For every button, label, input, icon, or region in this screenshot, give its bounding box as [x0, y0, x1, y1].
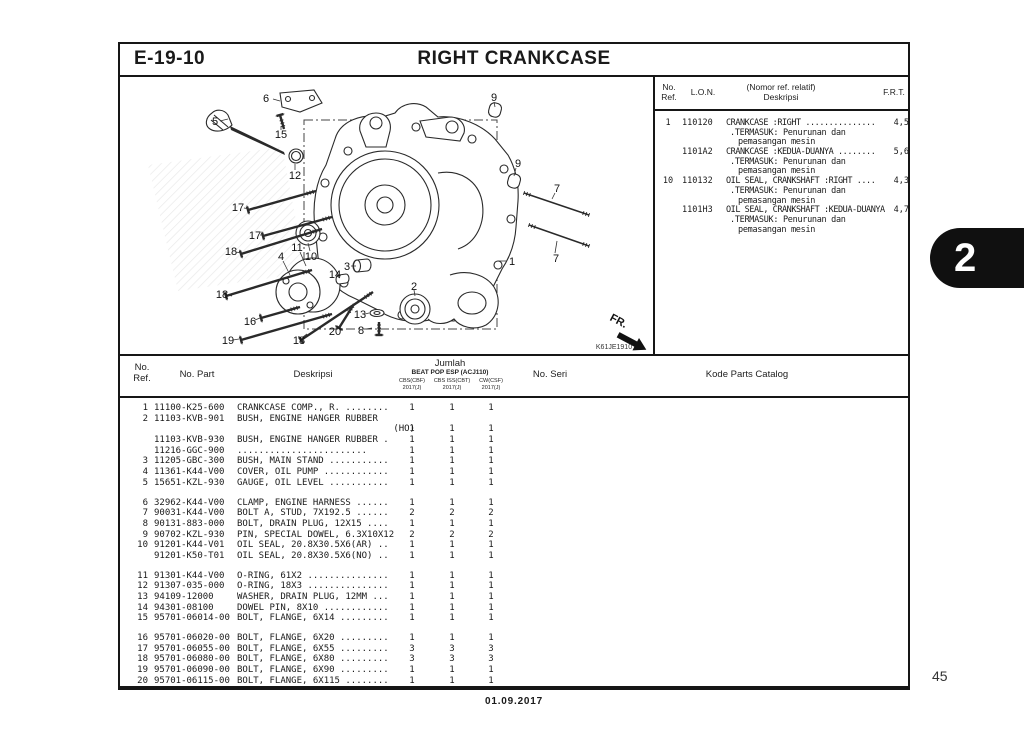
part-callout-3: 3 [344, 261, 350, 273]
part-callout-9: 9 [491, 92, 497, 104]
parts-table-body: 111100-K25-600CRANKCASE COMP., R. ......… [120, 398, 908, 686]
table-row: 990702-KZL-930PIN, SPECIAL DOWEL, 6.3X10… [120, 530, 908, 541]
catalog-page: E-19-10 RIGHT CRANKCASE [118, 42, 910, 690]
part-callout-20: 20 [329, 326, 341, 338]
table-row: 11216-GGC-900........................111 [120, 446, 908, 457]
table-row: (HO)111 [120, 424, 908, 435]
part-callout-18: 18 [216, 289, 228, 301]
part-callout-4: 4 [278, 251, 284, 263]
table-row: 1695701-06020-00BOLT, FLANGE, 6X20 .....… [120, 633, 908, 644]
upper-region: 651591297171718111043141718216138201918 … [120, 77, 908, 354]
fr-label: FR. [608, 312, 629, 331]
footer-date: 01.09.2017 [118, 696, 910, 707]
table-row: 1595701-06014-00BOLT, FLANGE, 6X14 .....… [120, 613, 908, 624]
table-row: 1091201-K44-V01OIL SEAL, 20.8X30.5X6(AR)… [120, 540, 908, 551]
exploded-parts-diagram: 651591297171718111043141718216138201918 … [120, 77, 655, 354]
model-name: BEAT POP ESP (ACJ110) [375, 369, 525, 376]
parts-group: 111100-K25-600CRANKCASE COMP., R. ......… [120, 403, 908, 489]
col-jumlah: Jumlah [390, 358, 510, 369]
table-row: 515651-KZL-930GAUGE, OIL LEVEL .........… [120, 478, 908, 489]
col-deskripsi: Deskripsi [250, 369, 376, 380]
part-callout-16: 16 [244, 316, 256, 328]
col-no-ref: No. [657, 82, 681, 92]
ref-row-note: pemasangan mesin [655, 226, 908, 236]
table-row: 1394109-12000WASHER, DRAIN PLUG, 12MM ..… [120, 592, 908, 603]
page-title: RIGHT CRANKCASE [120, 48, 908, 70]
variant-col-1: CBS(CBF) [396, 378, 428, 384]
part-callout-18: 18 [293, 335, 305, 347]
table-row: 1795701-06055-00BOLT, FLANGE, 6X55 .....… [120, 644, 908, 655]
parts-group: 1191301-K44-V00O-RING, 61X2 ............… [120, 571, 908, 624]
col-no-ref: No. [128, 362, 156, 373]
variant-col-2: CBS ISS(CBT) [432, 378, 472, 384]
col-no-seri: No. Seri [510, 369, 590, 380]
part-callout-17: 17 [249, 230, 261, 242]
part-callout-18: 18 [225, 246, 237, 258]
parts-group: 1695701-06020-00BOLT, FLANGE, 6X20 .....… [120, 633, 908, 686]
part-callout-7: 7 [553, 253, 559, 265]
table-row: 632962-K44-V00CLAMP, ENGINE HARNESS ....… [120, 498, 908, 509]
table-row: 11103-KVB-930BUSH, ENGINE HANGER RUBBER … [120, 435, 908, 446]
part-callout-8: 8 [358, 325, 364, 337]
col-no-part: No. Part [155, 369, 239, 380]
variant-col-3: CW(CSF) [473, 378, 509, 384]
part-callout-17: 17 [232, 202, 244, 214]
diagram-code: K61JE1910 [596, 344, 632, 351]
section-tab-number: 2 [954, 236, 976, 281]
table-row: 1291307-035-000O-RING, 18X3 ............… [120, 581, 908, 592]
table-row: 91201-K50-T01OIL SEAL, 20.8X30.5X6(NO) .… [120, 551, 908, 562]
table-row: 1191301-K44-V00O-RING, 61X2 ............… [120, 571, 908, 582]
part-callout-9: 9 [515, 158, 521, 170]
col-deskripsi: (Nomor ref. relatif) [715, 82, 847, 92]
title-bar: E-19-10 RIGHT CRANKCASE [120, 44, 908, 77]
parts-table-header: No. Ref. No. Part Deskripsi Jumlah BEAT … [120, 356, 908, 398]
table-row: 2095701-06115-00BOLT, FLANGE, 6X115 ....… [120, 676, 908, 687]
part-callout-2: 2 [411, 281, 417, 293]
part-callout-10: 10 [305, 251, 317, 263]
col-frt: F.R.T. [879, 87, 909, 97]
table-row: 890131-883-000BOLT, DRAIN PLUG, 12X15 ..… [120, 519, 908, 530]
part-callout-19: 19 [222, 335, 234, 347]
part-callout-1: 1 [509, 256, 515, 268]
table-row: 1494301-08100DOWEL PIN, 8X10 ...........… [120, 603, 908, 614]
part-callout-13: 13 [354, 309, 366, 321]
table-row: 1895701-06080-00BOLT, FLANGE, 6X80 .....… [120, 654, 908, 665]
section-thumb-tab: 2 [930, 228, 1024, 288]
part-callout-11: 11 [291, 242, 302, 254]
part-callout-6: 6 [263, 93, 269, 105]
part-callout-5: 5 [212, 116, 218, 128]
watermark-hatch [148, 147, 306, 291]
part-callout-7: 7 [554, 183, 560, 195]
parts-group: 632962-K44-V00CLAMP, ENGINE HARNESS ....… [120, 498, 908, 562]
table-row: 790031-K44-V00BOLT A, STUD, 7X192.5 ....… [120, 508, 908, 519]
table-row: 311205-GBC-300BUSH, MAIN STAND .........… [120, 456, 908, 467]
page-number: 45 [932, 668, 948, 684]
part-callout-12: 12 [289, 170, 301, 182]
table-row: 211103-KVB-901BUSH, ENGINE HANGER RUBBER [120, 414, 908, 425]
table-row: 1995701-06090-00BOLT, FLANGE, 6X90 .....… [120, 665, 908, 676]
parts-table: No. Ref. No. Part Deskripsi Jumlah BEAT … [120, 354, 908, 686]
table-row: 111100-K25-600CRANKCASE COMP., R. ......… [120, 403, 908, 414]
table-row: 411361-K44-V00COVER, OIL PUMP ..........… [120, 467, 908, 478]
part-callout-15: 15 [275, 129, 287, 141]
part-callout-14: 14 [329, 269, 341, 281]
reference-table-header: No. Ref. L.O.N. (Nomor ref. relatif) Des… [655, 77, 908, 111]
reference-table-body: 1110120CRANKCASE :RIGHT ...............4… [655, 111, 908, 354]
col-kode-parts-catalog: Kode Parts Catalog [657, 369, 837, 380]
reference-table: No. Ref. L.O.N. (Nomor ref. relatif) Des… [653, 77, 908, 354]
